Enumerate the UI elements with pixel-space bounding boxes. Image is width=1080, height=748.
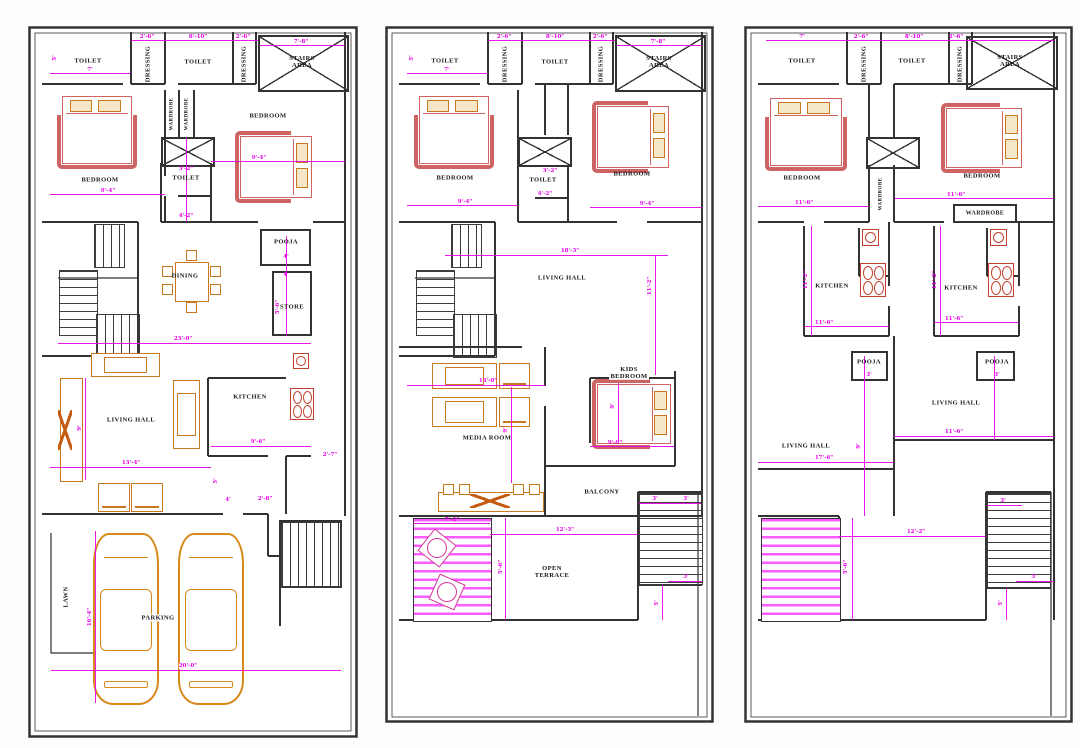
room-label-pooja: POOJA [274, 238, 298, 245]
stairs-icon [451, 224, 482, 268]
bed-icon [62, 96, 132, 164]
bed-icon [419, 96, 489, 164]
stairs-icon [59, 270, 98, 336]
room-label-pooja: POOJA [857, 358, 881, 365]
lift-icon [518, 137, 572, 167]
dim-label: 23'-0" [174, 336, 192, 342]
dim-label: 17'-6" [815, 455, 833, 461]
dim-label: 18'-3" [561, 248, 579, 254]
dining-table-icon [175, 262, 209, 302]
dim-label: 9'-4" [252, 155, 267, 161]
dim-label: 11'-6" [947, 192, 965, 198]
room-label-dressing: DRESSING [597, 46, 604, 82]
dim-label: 11'-6" [795, 200, 813, 206]
room-label-bedroom: BEDROOM [783, 174, 820, 181]
dim-label: 7'-8" [651, 39, 666, 45]
dim-label: 11'-2" [647, 277, 653, 295]
dim-label: 9' [856, 443, 862, 449]
dim-label: 3' [683, 574, 689, 580]
room-label-pooja: POOJA [985, 358, 1009, 365]
dim-label: 5' [213, 478, 219, 484]
room-label-dressing: DRESSING [240, 46, 247, 82]
dim-label: 13'-4" [122, 460, 140, 466]
sink-icon [990, 229, 1007, 246]
room-label-dressing: DRESSING [501, 46, 508, 82]
room-label-living-hall: LIVING HALL [782, 442, 830, 449]
second-floor-plan: TOILET DRESSING TOILET DRESSING STAIRS A… [744, 26, 1073, 723]
room-label-living-hall: LIVING HALL [932, 399, 980, 406]
dim-label: 5'-6" [275, 300, 281, 315]
dim-label: 2'-6" [236, 34, 251, 40]
chair-icon [162, 284, 173, 295]
room-label-stairs-area: STAIRS AREA [990, 54, 1030, 68]
bed-icon [770, 98, 842, 166]
dim-label: 2'-6" [497, 34, 512, 40]
armchair-icon [131, 483, 163, 512]
decor-icon [470, 494, 510, 508]
room-label-toilet: TOILET [74, 57, 101, 64]
room-label-bedroom: BEDROOM [81, 176, 118, 183]
dim-label: 5' [654, 600, 660, 606]
dim-label: 2'-6" [949, 34, 964, 40]
dim-label: 4' [225, 497, 231, 503]
dim-label: 3' [1031, 574, 1037, 580]
dim-label: 11'-2" [803, 271, 809, 289]
dim-label: 2'-6" [140, 34, 155, 40]
dim-label: 9' [503, 427, 509, 433]
bed-icon [597, 384, 671, 444]
speaker-icon [459, 484, 470, 495]
stairs-icon [96, 314, 140, 358]
dim-label: 11'-2" [932, 271, 938, 289]
room-label-dressing: DRESSING [144, 46, 151, 82]
room-label-media-room: MEDIA ROOM [463, 434, 512, 441]
dim-label: 9'-0" [608, 440, 623, 446]
room-label-wardrobe: WARDROBE [184, 98, 190, 131]
room-label-dressing: DRESSING [860, 46, 867, 82]
armchair-icon [98, 483, 130, 512]
lift-icon [866, 137, 920, 169]
room-label-dining: DINING [172, 272, 199, 279]
dim-label: 3' [1000, 498, 1006, 504]
dim-label: 11'-6" [945, 316, 963, 322]
dim-label: 4' [283, 272, 289, 278]
sofa-icon [173, 380, 200, 449]
dim-label: 9'-4" [458, 199, 473, 205]
room-label-dressing: DRESSING [956, 46, 963, 82]
room-label-toilet: TOILET [788, 57, 815, 64]
room-label-toilet: TOILET [172, 174, 199, 181]
room-label-wardrobe: WARDROBE [966, 211, 1005, 218]
dim-label: 9' [77, 425, 83, 431]
room-label-kids-bedroom: KIDS BEDROOM [609, 366, 649, 380]
dim-label: 2'-8" [258, 496, 273, 502]
stairs-icon [94, 224, 125, 268]
dim-label: 3' [652, 496, 658, 502]
stove-icon [860, 263, 886, 297]
stove-icon [290, 388, 314, 420]
sofa-icon [91, 353, 160, 377]
first-floor-plan: TOILET DRESSING TOILET DRESSING STAIRS A… [385, 26, 714, 723]
dim-label: 9'-4" [101, 188, 116, 194]
dim-label: 5' [409, 55, 415, 61]
room-label-parking: PARKING [141, 614, 174, 621]
room-label-kitchen: KITCHEN [815, 282, 849, 289]
dim-label: 3'-2" [543, 168, 558, 174]
dim-label: 2'-6" [593, 34, 608, 40]
room-label-toilet: TOILET [541, 58, 568, 65]
room-label-toilet: TOILET [529, 176, 556, 183]
stairs-icon [453, 314, 497, 358]
dim-label: 3' [994, 372, 1000, 378]
chair-icon [210, 284, 221, 295]
chair-icon [186, 250, 197, 261]
room-label-kitchen: KITCHEN [233, 393, 267, 400]
bed-icon [946, 108, 1022, 168]
dim-label: 7'-2" [445, 517, 460, 523]
dim-label: 4' [283, 254, 289, 260]
dim-label: 12'-2" [907, 529, 925, 535]
bed-icon [597, 106, 669, 168]
dim-label: 8'-10" [905, 34, 923, 40]
room-label-lawn: LAWN [62, 586, 69, 607]
dim-label: 5' [998, 600, 1004, 606]
room-label-kitchen: KITCHEN [944, 284, 978, 291]
sofa-icon [432, 397, 497, 427]
stove-icon [988, 263, 1014, 297]
dim-label: 4'-2" [538, 191, 553, 197]
dim-label: 7' [87, 67, 93, 73]
dim-label: 2'-7" [323, 452, 338, 458]
room-label-bedroom: BEDROOM [963, 172, 1000, 179]
dim-label: 16'-4" [87, 608, 93, 626]
dim-label: 11'-6" [945, 429, 963, 435]
room-label-toilet: TOILET [898, 57, 925, 64]
room-label-toilet: TOILET [184, 58, 211, 65]
armchair-icon [499, 397, 530, 427]
stairs-icon [639, 493, 703, 585]
room-label-wardrobe: WARDROBE [169, 98, 175, 131]
chair-icon [210, 266, 221, 277]
dim-label: 5'-6" [843, 560, 849, 575]
room-label-stairs-area: STAIRS AREA [282, 55, 322, 69]
dim-label: 3' [683, 496, 689, 502]
speaker-icon [443, 484, 454, 495]
dim-label: 7' [799, 34, 805, 40]
chair-icon [186, 302, 197, 313]
dim-label: 3'-2" [179, 166, 194, 172]
sink-icon [293, 353, 309, 369]
room-label-balcony: BALCONY [584, 488, 619, 495]
room-label-store: STORE [280, 303, 304, 310]
room-label-wardrobe: WARDROBE [878, 178, 884, 211]
dim-label: 12'-3" [556, 527, 574, 533]
room-label-bedroom: BEDROOM [613, 170, 650, 177]
lift-icon [161, 137, 215, 167]
terrace-deck-icon [761, 518, 841, 622]
room-label-bedroom: BEDROOM [436, 174, 473, 181]
bed-icon [240, 136, 312, 198]
dim-label: 9'-4" [640, 201, 655, 207]
dim-label: 13'-0" [479, 378, 497, 384]
dim-label: 9' [610, 403, 616, 409]
dim-label: 8'-10" [189, 34, 207, 40]
room-label-living-hall: LIVING HALL [107, 416, 155, 423]
dim-label: 4'-2" [179, 213, 194, 219]
dim-label: 2'-6" [854, 34, 869, 40]
sink-icon [862, 229, 879, 246]
floor-plan-sheet: { "colors": {"wall":"#333333","dimension… [0, 0, 1080, 748]
room-label-bedroom: BEDROOM [249, 112, 286, 119]
dim-label: 5'-6" [498, 560, 504, 575]
room-label-stairs-area: STAIRS AREA [639, 55, 679, 69]
ground-floor-plan: TOILET DRESSING TOILET DRESSING STAIRS A… [28, 26, 358, 738]
dim-label: 7' [444, 67, 450, 73]
dim-label: 5' [52, 55, 58, 61]
stairs-icon [416, 270, 455, 336]
dim-label: 20'-0" [179, 663, 197, 669]
dim-label: 7'-8" [294, 39, 309, 45]
stairs-icon [281, 522, 342, 588]
dim-label: 3' [866, 372, 872, 378]
speaker-icon [529, 484, 540, 495]
speaker-icon [513, 484, 524, 495]
car-icon [178, 533, 244, 705]
decor-icon [58, 410, 72, 450]
dim-label: 9'-6" [251, 439, 266, 445]
dim-label: 11'-6" [815, 320, 833, 326]
room-label-living-hall: LIVING HALL [538, 274, 586, 281]
room-label-toilet: TOILET [431, 57, 458, 64]
dim-label: 8'-10" [546, 34, 564, 40]
room-label-open-terrace: OPEN TERRACE [532, 565, 572, 579]
stairs-icon [987, 493, 1051, 588]
